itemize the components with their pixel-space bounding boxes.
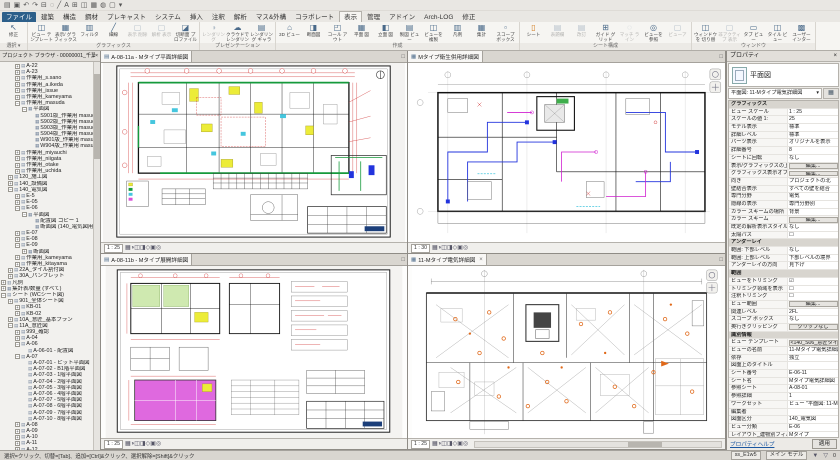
tree-expander-icon[interactable]: − xyxy=(15,243,20,248)
view-scale[interactable]: 1 : 25 xyxy=(104,440,123,449)
view-tab-active[interactable]: ▦ 11-Mタイプ電気詳細図 × xyxy=(408,254,487,265)
view-scale[interactable]: 1 : 25 xyxy=(411,440,430,449)
property-row[interactable]: 依存 独立 xyxy=(729,355,838,363)
ribbon-button[interactable]: ▤ 製図 ビュー xyxy=(398,23,421,42)
design-option-selector[interactable]: メイン モデル xyxy=(766,451,808,460)
ribbon-tab[interactable]: 解析 xyxy=(230,12,251,22)
property-row[interactable]: ビュー分類 E-06 xyxy=(729,424,838,432)
property-label: 図面区分 xyxy=(729,416,788,423)
property-row[interactable]: 既定の解析表示スタイル なし xyxy=(729,224,838,232)
ribbon-button[interactable]: ▢ 非アクティブ 表示 xyxy=(718,23,741,42)
ribbon-button-icon: ◌ xyxy=(618,23,641,32)
quick-access-icon[interactable]: ◍ xyxy=(100,1,106,10)
tree-expander-icon[interactable]: + xyxy=(15,76,20,81)
ribbon-button-label: 立面 図 xyxy=(374,32,397,42)
close-icon[interactable]: × xyxy=(95,51,98,61)
tree-expander-icon[interactable]: + xyxy=(15,422,20,427)
drawing-canvas[interactable] xyxy=(101,266,407,438)
property-label: 表示/グラフィックスの上書き xyxy=(729,163,788,170)
ribbon-button[interactable]: ▢ 表示 削除 xyxy=(126,23,149,42)
ribbon-button[interactable]: ▥ 凡例 xyxy=(446,23,469,42)
property-row[interactable]: 奥行きクリッピング クリップなし xyxy=(729,324,838,332)
property-row[interactable]: カラー スキームの場所 背景 xyxy=(729,209,838,217)
quick-access-icon[interactable]: ⊞ xyxy=(72,1,78,10)
property-row[interactable]: シートに回転 なし xyxy=(729,155,838,163)
floor-plan-icon: ▦ xyxy=(411,54,416,60)
ribbon-button-icon: ▯ xyxy=(522,23,545,32)
property-row[interactable]: 図面上のタイトル xyxy=(729,362,838,370)
view-control-icon[interactable]: ◎ xyxy=(463,245,468,251)
view-tab[interactable]: ▦ Mタイプ衛生併用詳細図 xyxy=(408,51,483,62)
property-row[interactable]: 注釈トリミング ☐ xyxy=(729,293,838,301)
ribbon-button[interactable]: ◫ ビューを 複製 xyxy=(422,23,445,42)
property-label: ビューをトリミング xyxy=(729,278,788,285)
tree-item[interactable]: + ▤ A-12 xyxy=(0,447,93,450)
ribbon-button[interactable]: ◎ ビューを 参照 xyxy=(642,23,665,42)
property-row[interactable]: 範囲: 下部レベル なし xyxy=(729,247,838,255)
ribbon-tab[interactable]: 挿入 xyxy=(186,12,207,22)
tree-expander-icon[interactable]: + xyxy=(15,163,20,168)
property-row[interactable]: カラー スキーム 編集... xyxy=(729,216,838,224)
type-selector-preview[interactable]: 平面図 xyxy=(728,63,839,87)
restore-window-icon[interactable]: □ xyxy=(399,257,407,263)
quick-access-icon[interactable]: ⊟ xyxy=(41,1,47,10)
tree-item-icon: ▤ xyxy=(21,354,25,360)
view-control-icon[interactable]: ◎ xyxy=(156,245,161,251)
ribbon-button[interactable]: ◫ タイル ビュー xyxy=(766,23,789,42)
ribbon-button-label: ビューア xyxy=(666,32,689,42)
ribbon-group: ◫ ウィンドウを 切り替え ▢ 非アクティブ 表示 ▭ タブ ビュー xyxy=(692,22,816,50)
drawing-canvas[interactable] xyxy=(101,63,407,242)
ribbon-group: ⌂ 3D ビュー ◨ 断面図 ◰ コール アウト xyxy=(276,22,520,50)
property-row[interactable]: 詳細番号 8 xyxy=(729,147,838,155)
property-row[interactable]: ビューの名前 11-Mタイプ電気詳細図 xyxy=(729,347,838,355)
tree-item-icon: ▤ xyxy=(21,341,25,347)
ribbon-button[interactable]: ▤ 表題欄 xyxy=(546,23,569,42)
quick-access-icon[interactable]: ◫ xyxy=(81,1,88,10)
browser-scrollbar[interactable] xyxy=(93,62,100,450)
ribbon-button-label: 非アクティブ 表示 xyxy=(718,32,741,42)
tree-item-icon: ▤ xyxy=(21,100,25,106)
workset-selector[interactable]: ss_E1w5 xyxy=(731,451,761,460)
property-row[interactable]: シート名 Mタイプ電気詳細図 xyxy=(729,378,838,386)
property-row[interactable]: 専門分野 電気 xyxy=(729,193,838,201)
ribbon-button-icon: ▫ xyxy=(494,23,517,32)
ribbon-tab[interactable]: 構造 xyxy=(59,12,80,22)
property-row[interactable]: モデル表示 標準 xyxy=(729,124,838,132)
ribbon-button-label: コール アウト xyxy=(326,32,349,42)
property-value[interactable]: 標準 xyxy=(788,132,838,139)
tree-expander-icon[interactable]: + xyxy=(15,169,20,174)
ribbon-group-label: 作成 xyxy=(276,43,519,50)
properties-title: プロパティ xyxy=(730,51,833,61)
tree-expander-icon[interactable]: + xyxy=(15,429,20,434)
ribbon-button[interactable]: ▤ レンダリング ギャラリー xyxy=(250,23,273,42)
property-label: ビューの名前 xyxy=(729,347,788,354)
tree-expander-icon[interactable]: + xyxy=(15,262,20,267)
ribbon-button-label: 断面図 xyxy=(302,32,325,42)
ribbon-button[interactable]: ☁ クラウドで レンダリング xyxy=(226,23,249,42)
ribbon-button[interactable]: ▢ ビューア xyxy=(666,23,689,42)
ribbon-button-icon: ☁ xyxy=(226,23,249,32)
property-row[interactable]: グラフィックス表示オプション 編集... xyxy=(729,170,838,178)
close-icon[interactable]: × xyxy=(477,257,483,263)
property-value[interactable]: 編集... xyxy=(789,163,838,169)
ribbon-tab[interactable]: ファイル xyxy=(2,12,36,22)
property-label: 向き xyxy=(729,178,788,185)
restore-window-icon[interactable]: □ xyxy=(717,54,725,60)
tree-item-icon: ▤ xyxy=(14,323,18,329)
editable-only-icon[interactable]: ▼ xyxy=(812,453,818,459)
ribbon-button[interactable]: ⌂ 3D ビュー xyxy=(278,23,301,42)
property-row[interactable]: スケールの値 1: 25 xyxy=(729,116,838,124)
ribbon-button-label: 製図 ビュー xyxy=(398,32,421,42)
ribbon-tab[interactable]: Arch-LOG xyxy=(420,12,457,22)
property-label: 隠線の表示 xyxy=(729,201,788,208)
viewport-top-left: ▤ A-08-11a - Mタイプ平面詳細図 □ xyxy=(101,51,408,254)
tree-expander-icon[interactable]: − xyxy=(15,206,20,211)
property-value[interactable]: 専門分野別 xyxy=(788,201,838,208)
viewport-tabbar: ▦ Mタイプ衛生併用詳細図 □ xyxy=(408,51,725,63)
property-row[interactable]: 太陽パス ☐ xyxy=(729,232,838,240)
quick-access-icon[interactable]: ╱ xyxy=(57,1,61,10)
tree-expander-icon[interactable]: − xyxy=(1,293,6,298)
quick-access-icon[interactable]: ▤ xyxy=(4,1,11,10)
property-label: 編集者 xyxy=(729,409,788,416)
ribbon-button[interactable]: ▢ 解析 表示 xyxy=(150,23,173,42)
quick-access-icon[interactable]: ▣ xyxy=(14,1,21,10)
properties-help-link[interactable]: プロパティヘルプ xyxy=(730,440,774,448)
property-row[interactable]: 編集者 xyxy=(729,409,838,417)
property-value[interactable]: Mタイプ電気詳細図 xyxy=(788,378,838,385)
quick-access-icon[interactable]: A xyxy=(64,1,69,10)
property-value[interactable]: なし xyxy=(788,247,838,254)
sheet-icon: ▤ xyxy=(104,257,109,263)
ribbon-button[interactable]: ◌ マッチ ライン xyxy=(618,23,641,42)
ribbon-button-icon: ▢ xyxy=(126,23,149,32)
filter-icon[interactable]: ▽ xyxy=(823,452,828,459)
property-value[interactable]: なし xyxy=(788,224,838,231)
tree-expander-icon[interactable]: + xyxy=(22,249,27,254)
ribbon-button[interactable]: ⊞ ガイド グリッド xyxy=(594,23,617,42)
property-row[interactable]: 関連レベル 2FL xyxy=(729,309,838,317)
tree-expander-icon[interactable]: + xyxy=(8,317,13,322)
status-hint-text: 選択=クリック、切替=[Tab]、追加=[Ctrl]&クリック、選択解除=[Sh… xyxy=(4,452,194,460)
ribbon-button[interactable]: ◫ ウィンドウを 切り替え xyxy=(694,23,717,42)
ribbon-button[interactable]: ▭ タブ ビュー xyxy=(742,23,765,42)
property-label: 参照シート xyxy=(729,385,788,392)
horizontal-scrollbar[interactable] xyxy=(474,441,722,448)
property-row[interactable]: 壁結合表示 すべての壁を結合 xyxy=(729,186,838,194)
property-row[interactable]: 表示/グラフィックスの上書き 編集... xyxy=(729,163,838,171)
ribbon-tab[interactable]: 表示 xyxy=(339,11,362,22)
property-row[interactable]: 隠線の表示 専門分野別 xyxy=(729,201,838,209)
property-value[interactable]: E-06 xyxy=(788,424,838,431)
property-row[interactable]: 詳細レベル 標準 xyxy=(729,132,838,140)
tree-expander-icon[interactable]: + xyxy=(15,82,20,87)
ribbon-button[interactable]: ◫ ビュー テンプレート xyxy=(30,23,53,42)
tree-expander-icon[interactable]: + xyxy=(15,150,20,155)
properties-panel: プロパティ × 平面図 平面図: 11-Mタイプ電気詳細図 ▾ ▦ グラフィック… xyxy=(726,51,840,450)
ribbon-button[interactable]: ◨ 断面図 xyxy=(302,23,325,42)
tree-expander-icon[interactable]: + xyxy=(15,330,20,335)
property-row[interactable]: 範囲: 上部レベル 下部レベルの境界 xyxy=(729,255,838,263)
drawing-canvas[interactable] xyxy=(408,63,725,242)
ribbon-button[interactable]: ◑ レンダリング xyxy=(202,23,225,42)
electrical-plan-drawing xyxy=(408,266,725,438)
tree-item-icon: ▦ xyxy=(28,212,32,218)
ribbon-button-label: 修正 xyxy=(2,32,25,42)
property-value[interactable]: ☑ xyxy=(788,278,838,285)
tree-expander-icon[interactable]: − xyxy=(15,342,20,347)
ribbon-button-icon: ▢ xyxy=(666,23,689,32)
restore-window-icon[interactable]: □ xyxy=(717,257,725,263)
apply-button[interactable]: 適用 xyxy=(812,439,837,449)
quick-access-icon[interactable]: ▾ xyxy=(119,1,123,10)
type-edit-button[interactable]: ▦ xyxy=(823,88,839,99)
property-value[interactable]: 編集... xyxy=(789,217,838,223)
tree-expander-icon[interactable]: + xyxy=(15,336,20,341)
property-value[interactable]: 編集... xyxy=(789,171,838,177)
tree-item-icon: ▤ xyxy=(21,205,25,211)
ribbon-button[interactable]: ╱ 細線 xyxy=(102,23,125,42)
ribbon-button[interactable]: ▩ ユーザー インター フェイス xyxy=(790,23,813,42)
property-value[interactable]: 140_電気図 xyxy=(788,416,838,423)
ribbon-button[interactable]: ▦ 平面 図 xyxy=(350,23,373,42)
tree-expander-icon[interactable]: + xyxy=(15,255,20,260)
tree-expander-icon[interactable]: + xyxy=(15,194,20,199)
restore-window-icon[interactable]: □ xyxy=(399,54,407,60)
property-row[interactable]: 範囲 xyxy=(729,270,838,278)
property-value[interactable]: 11-Mタイプ電気詳細図 xyxy=(788,347,838,354)
tree-expander-icon[interactable]: + xyxy=(15,447,20,450)
tree-expander-icon[interactable]: + xyxy=(15,237,20,242)
tree-expander-icon[interactable]: + xyxy=(15,435,20,440)
ribbon-group-label: プレゼンテーション xyxy=(200,43,275,50)
property-value[interactable]: ☐ xyxy=(788,286,838,293)
ribbon-button-icon: ▥ xyxy=(446,23,469,32)
property-value[interactable]: 見下げ xyxy=(788,262,838,269)
ribbon-button-icon: ◫ xyxy=(766,23,789,32)
ribbon-button[interactable]: ◪ 切断面 プロファイル xyxy=(174,23,197,42)
tree-expander-icon[interactable]: + xyxy=(15,88,20,93)
tree-expander-icon[interactable]: + xyxy=(15,156,20,161)
view-control-bar: 1 : 25 ▦◑◫◨◇▣◎ xyxy=(101,242,407,253)
ribbon-tab[interactable]: 注釈 xyxy=(208,12,229,22)
view-scale[interactable]: 1 : 30 xyxy=(411,244,430,253)
ribbon-button-label: 集計 xyxy=(470,32,493,42)
property-row[interactable]: 向き プロジェクトの北 xyxy=(729,178,838,186)
ribbon-button[interactable]: ▯ シート xyxy=(522,23,545,42)
property-value[interactable]: 標準 xyxy=(788,124,838,131)
property-label: ビュー分類 xyxy=(729,424,788,431)
property-row[interactable]: シート番号 E-06-11 xyxy=(729,370,838,378)
property-value[interactable]: 8 xyxy=(788,147,838,154)
quick-access-icon[interactable]: ◌ xyxy=(50,1,54,10)
view-scale[interactable]: 1 : 25 xyxy=(104,244,123,253)
property-value[interactable]: 電気 xyxy=(788,193,838,200)
ribbon-button[interactable]: ↖ 修正 xyxy=(2,23,25,42)
property-value[interactable]: 1 : 25 xyxy=(788,109,838,116)
drawing-canvas[interactable] xyxy=(408,266,725,438)
ribbon-tab[interactable]: コラボレート xyxy=(291,12,338,22)
view-control-icon[interactable]: ◎ xyxy=(463,441,468,447)
ribbon-button-icon: ▤ xyxy=(250,23,273,32)
property-row[interactable]: 図面区分 140_電気図 xyxy=(729,416,838,424)
property-row[interactable]: パーツ表示 オリジナルを表示 xyxy=(729,139,838,147)
ribbon-button-icon: ▦ xyxy=(350,23,373,32)
property-value[interactable]: 背景 xyxy=(788,209,838,216)
property-value[interactable]: 2FL xyxy=(788,309,838,316)
quick-access-icon[interactable]: ↷ xyxy=(32,1,38,10)
tree-expander-icon[interactable]: + xyxy=(8,299,13,304)
property-row[interactable]: 識別情報 xyxy=(729,332,838,340)
ribbon-button[interactable]: ▫ スコープ ボックス xyxy=(494,23,517,42)
property-row[interactable]: ビュー スケール 1 : 25 xyxy=(729,109,838,117)
ribbon-group: ◑ レンダリング ☁ クラウドで レンダリング ▤ レンダリング ギャラリー xyxy=(200,22,276,50)
tree-expander-icon[interactable]: + xyxy=(8,181,13,186)
property-value[interactable]: E-06-11 xyxy=(788,370,838,377)
ribbon-tab[interactable]: 鋼材 xyxy=(81,12,102,22)
property-row[interactable]: 参照シート A-08-01 xyxy=(729,385,838,393)
view-tab-label: A-08-11b - Mタイプ展開詳細図 xyxy=(111,256,188,264)
property-label: 太陽パス xyxy=(729,232,788,239)
tree-expander-icon[interactable]: + xyxy=(8,268,13,273)
property-value[interactable]: ☐ xyxy=(788,293,838,300)
view-tab[interactable]: ▤ A-08-11b - Mタイプ展開詳細図 xyxy=(101,254,192,265)
tree-expander-icon[interactable]: − xyxy=(22,107,27,112)
ribbon-tab[interactable]: システム xyxy=(151,12,185,22)
tree-expander-icon[interactable]: − xyxy=(8,187,13,192)
ribbon-button[interactable]: ▦ 表示/ グラフィックス xyxy=(54,23,77,42)
plumbing-plan-drawing xyxy=(408,63,725,242)
ribbon-tab[interactable]: 修正 xyxy=(458,12,479,22)
property-row[interactable]: アンダーレイの方向 見下げ xyxy=(729,262,838,270)
ribbon-tab[interactable]: マス&外構 xyxy=(252,12,290,22)
close-icon[interactable]: × xyxy=(833,51,837,61)
quick-access-icon[interactable]: ▦ xyxy=(90,1,97,10)
property-label: 詳細レベル xyxy=(729,132,788,139)
tree-expander-icon[interactable]: + xyxy=(8,175,13,180)
selection-count: 0 xyxy=(833,453,836,459)
project-browser-panel: プロジェクト ブラウザ - 00000001_千葉中央_7... × + ▤ A… xyxy=(0,51,101,450)
tree-expander-icon[interactable]: − xyxy=(22,212,27,217)
view-tab-label: 11-Mタイプ電気詳細図 xyxy=(418,256,475,264)
property-row[interactable]: ビューをトリミング ☑ xyxy=(729,278,838,286)
property-label: スコープ ボックス xyxy=(729,316,788,323)
property-value[interactable]: 独立 xyxy=(788,355,838,362)
tree-expander-icon[interactable]: + xyxy=(15,305,20,310)
property-value[interactable]: すべての壁を結合 xyxy=(788,186,838,193)
tree-expander-icon[interactable]: − xyxy=(15,354,20,359)
property-value[interactable]: なし xyxy=(788,155,838,162)
ribbon-tab[interactable]: アドイン xyxy=(385,12,419,22)
tree-expander-icon[interactable]: − xyxy=(15,101,20,106)
ribbon-button[interactable]: ▤ 改訂 xyxy=(570,23,593,42)
property-value[interactable]: A-08-01 xyxy=(788,385,838,392)
ribbon-button[interactable]: ▦ 集計 xyxy=(470,23,493,42)
property-value[interactable]: 25 xyxy=(788,116,838,123)
tree-expander-icon[interactable]: + xyxy=(15,231,20,236)
tree-expander-icon[interactable]: + xyxy=(15,70,20,75)
property-value[interactable]: 下部レベルの境界 xyxy=(788,255,838,262)
ribbon-button-icon: ⌂ xyxy=(278,23,301,32)
ribbon-button-icon: ◰ xyxy=(326,23,349,32)
property-row[interactable]: グラフィックス xyxy=(729,101,838,109)
ribbon-tab[interactable]: プレキャスト xyxy=(103,12,150,22)
project-browser-title: プロジェクト ブラウザ - 00000001_千葉中央_7... xyxy=(2,51,95,61)
ribbon-button-label: ウィンドウを 切り替え xyxy=(694,32,717,42)
ribbon-button-label: ユーザー インター フェイス xyxy=(790,32,813,42)
property-value[interactable]: プロジェクトの北 xyxy=(788,178,838,185)
status-bar: 選択=クリック、切替=[Tab]、追加=[Ctrl]&クリック、選択解除=[Sh… xyxy=(0,450,840,460)
property-row[interactable]: 参照詳細 1 xyxy=(729,393,838,401)
property-row[interactable]: ワークセット ビュー "平面図: 11-Mタイプ電... xyxy=(729,401,838,409)
property-label: アンダーレイの方向 xyxy=(729,262,788,269)
ribbon-button[interactable]: ▥ フィルタ xyxy=(78,23,101,42)
property-value[interactable] xyxy=(788,409,838,416)
property-row[interactable]: ビュー テンプレート <140_S06_意匠タイプ図 設備用> xyxy=(729,339,838,347)
property-value[interactable]: 編集... xyxy=(789,301,838,307)
view-control-icon[interactable]: ◎ xyxy=(156,441,161,447)
quick-access-icon[interactable]: ▢ xyxy=(109,1,116,10)
ribbon-button-label: 平面 図 xyxy=(350,32,373,42)
tree-expander-icon[interactable]: + xyxy=(15,95,20,100)
property-row[interactable]: アンダーレイ xyxy=(729,239,838,247)
tree-expander-icon[interactable]: + xyxy=(15,200,20,205)
tree-expander-icon[interactable]: + xyxy=(15,311,20,316)
ribbon-button-icon: ⊞ xyxy=(594,23,617,32)
ribbon-button[interactable]: ◰ コール アウト xyxy=(326,23,349,42)
property-label: カラー スキームの場所 xyxy=(729,209,788,216)
ribbon-tab[interactable]: 管理 xyxy=(363,12,384,22)
ribbon-button-label: マッチ ライン xyxy=(618,32,641,42)
property-row[interactable]: ビュー範囲 編集... xyxy=(729,301,838,309)
ribbon-button[interactable]: ◧ 立面 図 xyxy=(374,23,397,42)
property-value[interactable]: クリップなし xyxy=(789,324,838,330)
ribbon-button-icon: ▦ xyxy=(54,23,77,32)
tree-expander-icon[interactable]: + xyxy=(15,64,20,69)
property-value[interactable] xyxy=(788,362,838,369)
quick-access-icon[interactable]: ↶ xyxy=(23,1,29,10)
property-row[interactable]: トリミング領域を表示 ☐ xyxy=(729,286,838,294)
property-label: ワークセット xyxy=(729,401,788,408)
property-value[interactable]: ☐ xyxy=(788,232,838,239)
element-selector-dropdown[interactable]: 平面図: 11-Mタイプ電気詳細図 ▾ xyxy=(728,88,822,99)
tree-expander-icon[interactable]: + xyxy=(1,280,6,285)
ribbon-button-icon: ↖ xyxy=(2,23,25,32)
property-value[interactable]: ビュー "平面図: 11-Mタイプ電... xyxy=(788,401,838,408)
ribbon-tab[interactable]: 建築 xyxy=(37,12,58,22)
tree-expander-icon[interactable]: + xyxy=(15,441,20,446)
ribbon-button-icon: ◧ xyxy=(374,23,397,32)
property-value[interactable]: <140_S06_意匠タイプ図 設備用> xyxy=(789,340,838,346)
ribbon-button-label: ビュー テンプレート xyxy=(30,32,53,42)
property-value[interactable]: オリジナルを表示 xyxy=(788,139,838,146)
tree-expander-icon[interactable]: − xyxy=(8,323,13,328)
tree-expander-icon[interactable]: + xyxy=(1,286,6,291)
view-control-bar: 1 : 25 ▦◑◫◨◇▣◎ xyxy=(101,438,407,449)
view-tab[interactable]: ▤ A-08-11a - Mタイプ平面詳細図 xyxy=(101,51,192,62)
tree-expander-icon[interactable]: + xyxy=(8,274,13,279)
tree-item-icon: ▤ xyxy=(21,242,25,248)
property-row[interactable]: スコープ ボックス なし xyxy=(729,316,838,324)
property-value[interactable]: なし xyxy=(788,316,838,323)
ribbon-button-icon: ╱ xyxy=(102,23,125,32)
property-value[interactable]: 1 xyxy=(788,393,838,400)
ribbon-group-label: 選択 ▾ xyxy=(0,43,27,50)
revit-application-window: ▤▣↶↷⊟◌╱A⊞◫▦◍▢▾ ファイル建築構造鋼材プレキャストシステム挿入注釈解… xyxy=(0,0,840,460)
